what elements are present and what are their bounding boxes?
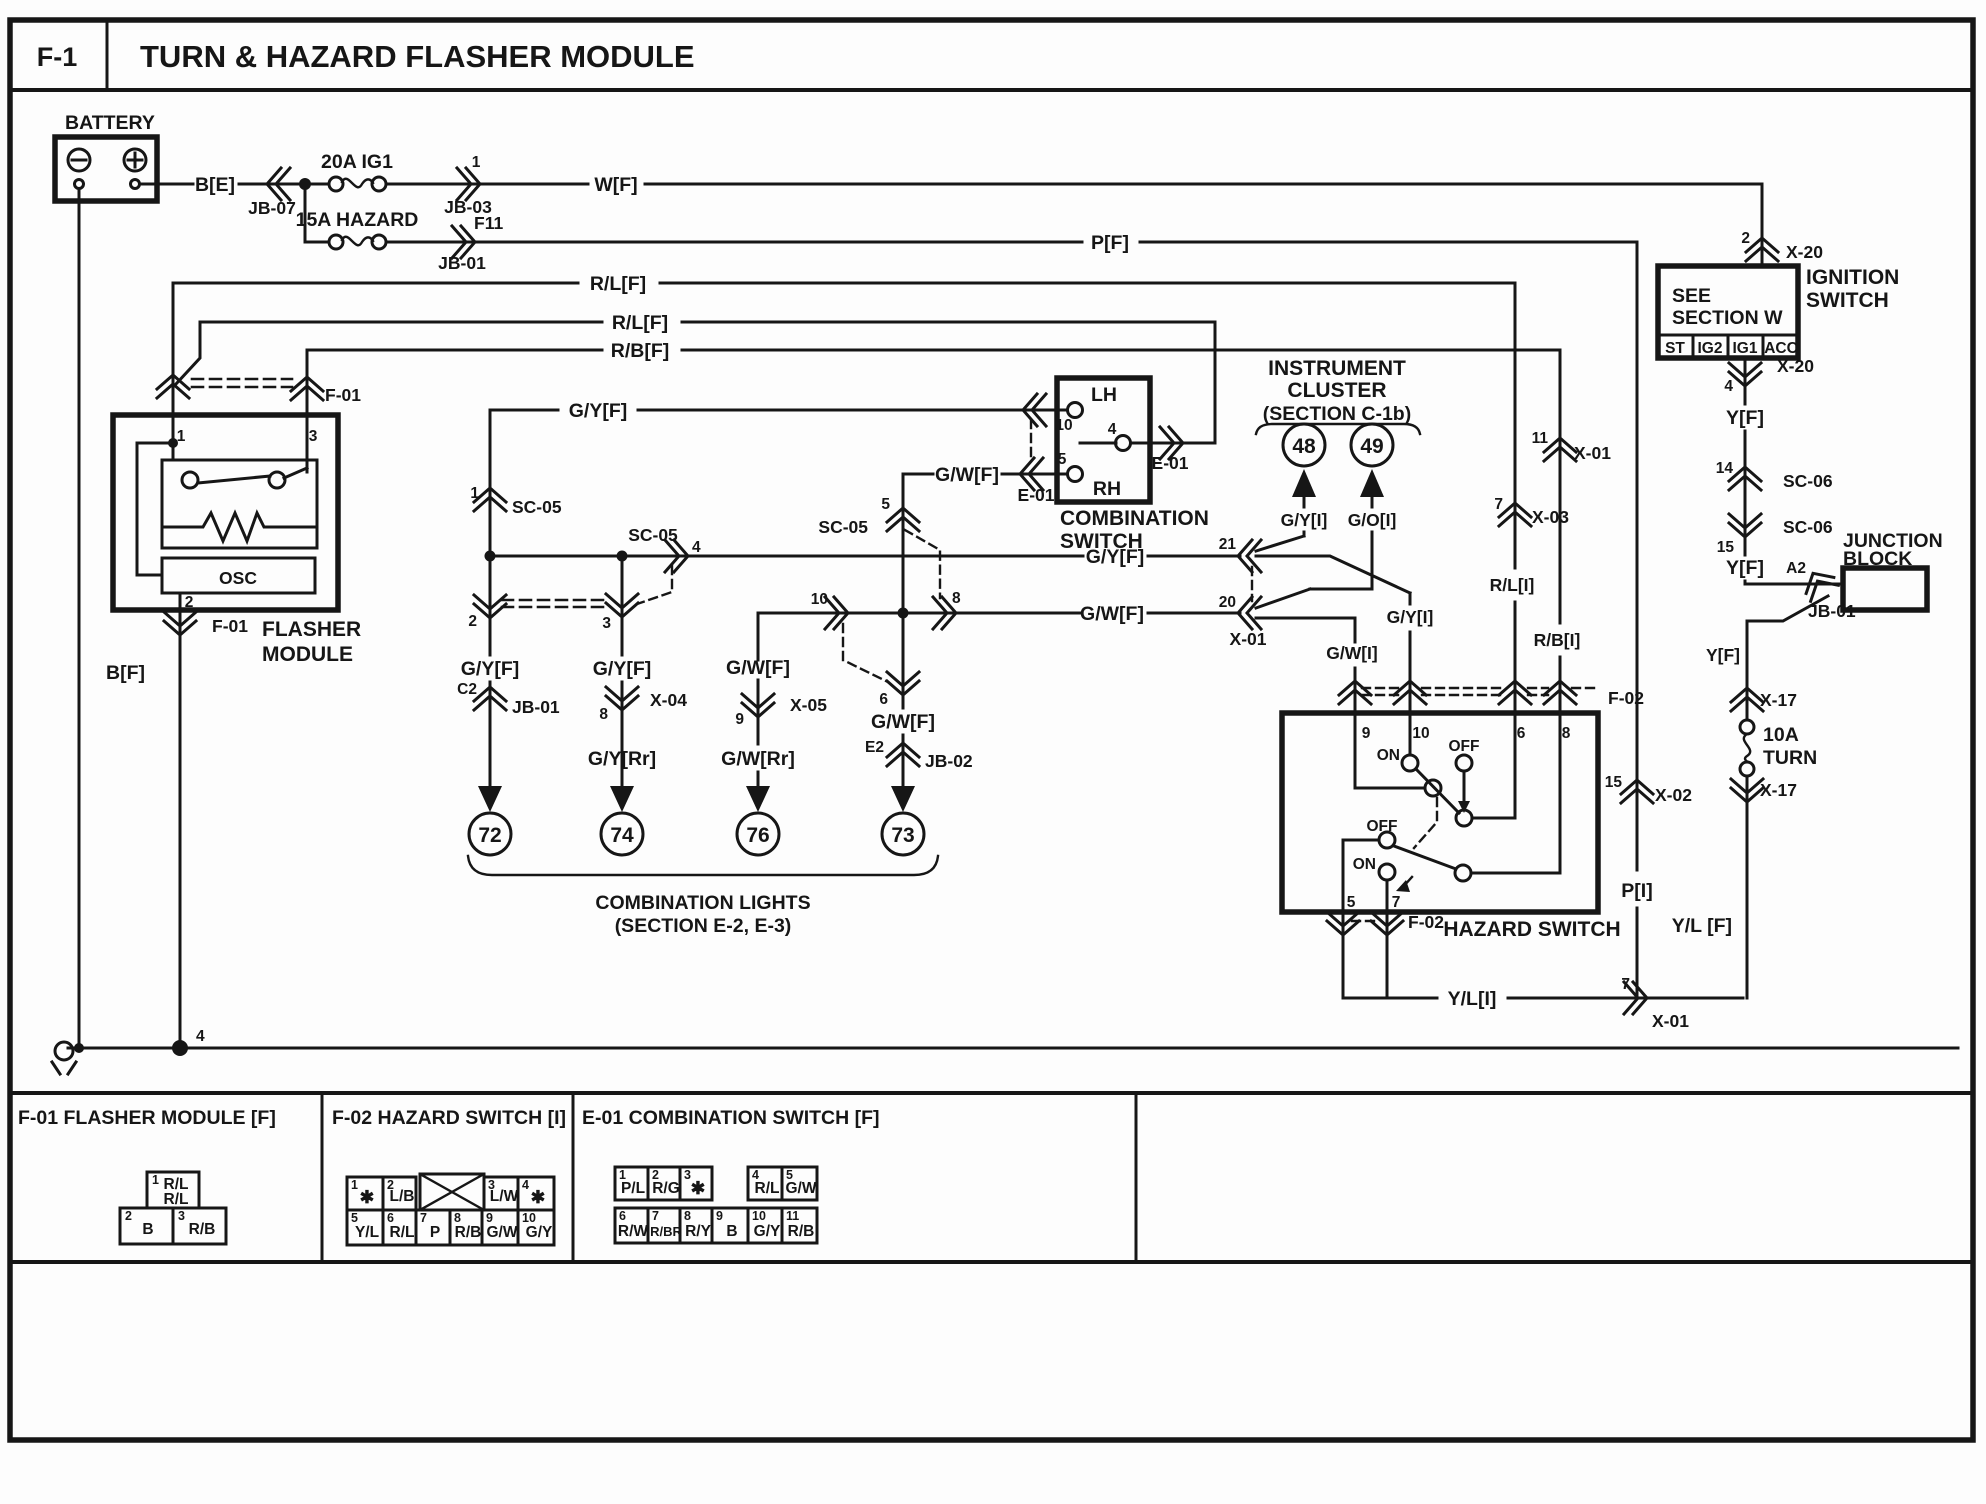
pin-number: 4 xyxy=(692,539,701,556)
table-header: F-02 HAZARD SWITCH [I] xyxy=(332,1107,566,1129)
switch-pos: OFF xyxy=(1449,738,1480,755)
wiring-diagram-page: F-1 TURN & HAZARD FLASHER MODULE BATTERY… xyxy=(0,0,1986,1504)
table-header: F-01 FLASHER MODULE [F] xyxy=(18,1107,276,1129)
pin-number: 1 xyxy=(152,1173,159,1187)
wire-label: G/Y[F] xyxy=(461,658,520,680)
pin-wire: R/L xyxy=(164,1191,189,1208)
arrow-up-icon xyxy=(1292,469,1316,497)
arrow-down-icon xyxy=(746,786,770,812)
connector-label: X-01 xyxy=(1574,443,1611,463)
pin-number: C2 xyxy=(457,681,477,698)
battery: BATTERY xyxy=(55,112,157,1048)
connector-label: X-20 xyxy=(1786,242,1823,262)
section-label: SECTION W xyxy=(1672,307,1783,329)
pin-number: 10 xyxy=(752,1209,766,1223)
wire-label: G/Y[I] xyxy=(1387,607,1434,627)
wire-label: G/Y[Rr] xyxy=(588,748,656,770)
component-label: MODULE xyxy=(262,643,353,666)
wire-label: Y/L [F] xyxy=(1672,915,1732,937)
arrow-down-icon xyxy=(891,786,915,812)
section-label: (SECTION E-2, E-3) xyxy=(615,915,792,937)
pin-wire: R/L xyxy=(390,1224,415,1241)
wire-label: G/W[Rr] xyxy=(721,748,795,770)
pin-number: 9 xyxy=(1362,725,1371,742)
connector-label: F-02 xyxy=(1408,912,1444,932)
switch-pos: OFF xyxy=(1367,818,1398,835)
connector-label: F-01 xyxy=(325,385,361,405)
pin-number: 1 xyxy=(177,428,186,445)
pin-number: 7 xyxy=(652,1209,659,1223)
arrow-down-icon xyxy=(478,786,502,812)
pin-number: 8 xyxy=(952,590,961,607)
pin-number: 11 xyxy=(1532,430,1549,447)
hazard-switch: ON OFF OFF ON 9 10 6 8 5 7 F-02 F-02 HAZ… xyxy=(1282,688,1743,1031)
pin-number: 7 xyxy=(1494,496,1503,513)
connector-table-f01: F-01 FLASHER MODULE [F] 1 R/L R/L 2 B 3 … xyxy=(18,1107,276,1244)
wire-label: W[F] xyxy=(594,174,637,196)
connector-label: SC-06 xyxy=(1783,517,1833,537)
pin-number: 4 xyxy=(1724,378,1733,395)
connector-label: X-02 xyxy=(1655,785,1692,805)
pin-number: 11 xyxy=(786,1209,799,1223)
switch-pos: ON xyxy=(1377,747,1400,764)
pin-number: 7 xyxy=(1392,894,1401,911)
ignition-switch: SEE SECTION W ST IG2 IG1 ACC IGNITION SW… xyxy=(1658,230,1899,358)
battery-label: BATTERY xyxy=(65,112,155,134)
combination-switch: LH RH 10 4 5 E-01 E-01 COMBINATION SWITC… xyxy=(1018,378,1209,553)
pin-number: 8 xyxy=(599,706,608,723)
pin-number: 7 xyxy=(420,1211,427,1225)
ign-pos: IG1 xyxy=(1733,340,1758,357)
connector-label: X-04 xyxy=(650,690,687,710)
wire-label: G/Y[F] xyxy=(593,658,652,680)
switch-pos: ON xyxy=(1353,856,1376,873)
pin-number: 21 xyxy=(1219,536,1237,553)
see-label: SEE xyxy=(1672,285,1711,307)
pin-wire: R/W xyxy=(618,1223,649,1240)
pin-wire: G/W xyxy=(786,1180,817,1197)
lh-label: LH xyxy=(1091,384,1117,406)
connector-label: JB-01 xyxy=(512,697,560,717)
pin-wire: R/G xyxy=(652,1180,680,1197)
pin-wire: R/L xyxy=(755,1180,780,1197)
pin-wire: Y/L xyxy=(355,1224,379,1241)
pin-number: 4 xyxy=(1108,421,1117,438)
wire-label: R/L[I] xyxy=(1490,575,1535,595)
osc-label: OSC xyxy=(219,568,257,588)
pin-number: 9 xyxy=(735,711,744,728)
connector-label: F-01 xyxy=(212,616,248,636)
page-title: TURN & HAZARD FLASHER MODULE xyxy=(140,39,695,74)
pin-number: E2 xyxy=(865,739,884,756)
pin-number: 4 xyxy=(522,1178,529,1192)
component-label: SWITCH xyxy=(1806,289,1889,312)
rh-label: RH xyxy=(1093,478,1121,500)
component-label: SWITCH xyxy=(1060,530,1143,553)
pin-wire: R/B xyxy=(455,1224,482,1241)
connector-chevrons xyxy=(157,168,1838,1014)
connector-label: X-17 xyxy=(1760,690,1797,710)
turn-signal-trunk-wires: R/L[F] R/L[F] R/B[F] R/L[I] R/B[I] 7 X-0… xyxy=(173,273,1611,713)
wire-label: B[E] xyxy=(195,174,235,196)
wire-label: R/L[F] xyxy=(590,273,646,295)
pin-number: 2 xyxy=(185,594,194,611)
connector-label: X-01 xyxy=(1652,1011,1689,1031)
pin-number: 8 xyxy=(454,1211,461,1225)
section-label: (SECTION C-1b) xyxy=(1263,403,1411,425)
pin-wire: G/Y xyxy=(754,1223,781,1240)
title-block: F-1 TURN & HAZARD FLASHER MODULE xyxy=(37,39,695,74)
ign-pos: ACC xyxy=(1764,340,1798,357)
connector-label: JB-02 xyxy=(925,751,973,771)
light-ref: 74 xyxy=(610,824,634,847)
connector-label: SC-05 xyxy=(818,517,868,537)
table-header: E-01 COMBINATION SWITCH [F] xyxy=(582,1107,880,1129)
fuse-label: 10A xyxy=(1763,724,1799,746)
pin-wire: L/B xyxy=(390,1188,415,1205)
component-label: IGNITION xyxy=(1806,266,1899,289)
indicator-ref: 48 xyxy=(1292,435,1316,458)
pin-number: 10 xyxy=(1055,417,1072,434)
wire-label: Y[F] xyxy=(1726,407,1764,429)
wire-label: Y[F] xyxy=(1706,645,1740,665)
pin-number: 6 xyxy=(1517,725,1526,742)
pin-number: 3 xyxy=(602,615,611,632)
pin-number: 4 xyxy=(196,1028,205,1045)
pin-number: 5 xyxy=(881,496,890,513)
pin-number: 10 xyxy=(1412,725,1429,742)
connector-label: F-02 xyxy=(1608,688,1644,708)
pin-number: 6 xyxy=(879,691,888,708)
connector-label: X-17 xyxy=(1760,780,1797,800)
pin-wire: R/B xyxy=(788,1223,815,1240)
flasher-module: OSC F-01 1 3 2 F-01 FLASHER MODULE B[F] xyxy=(106,379,361,1048)
wire-label: G/W[F] xyxy=(1080,603,1144,625)
pin-wire: P/L xyxy=(621,1180,645,1197)
pin-wire: B xyxy=(726,1223,737,1240)
pin-wire: R/Y xyxy=(685,1223,712,1240)
pin-number: 10 xyxy=(522,1211,536,1225)
pin-number: 8 xyxy=(1562,725,1571,742)
connector-label: X-20 xyxy=(1777,356,1814,376)
wire-label: G/W[F] xyxy=(871,711,935,733)
pin-number: 9 xyxy=(716,1209,723,1223)
connector-label: SC-05 xyxy=(628,525,678,545)
pin-number: 6 xyxy=(387,1211,394,1225)
wire-label: Y/L[I] xyxy=(1448,988,1497,1010)
pin-number: 1 xyxy=(351,1178,358,1192)
component-label: CLUSTER xyxy=(1287,379,1386,402)
light-ref: 72 xyxy=(478,824,501,847)
wire-label: R/B[F] xyxy=(611,340,669,362)
light-ref: 73 xyxy=(891,824,914,847)
pin-number: 9 xyxy=(486,1211,493,1225)
wire-label: R/B[I] xyxy=(1534,630,1581,650)
pin-number: 6 xyxy=(619,1209,626,1223)
wire-label: G/W[F] xyxy=(935,464,999,486)
pin-number: 5 xyxy=(1347,894,1356,911)
wire-label: G/O[I] xyxy=(1348,510,1397,530)
combination-lights: G/Y[F] C2 JB-01 G/Y[F] 8 X-04 G/Y[Rr] G/… xyxy=(457,657,973,937)
connector-label: SC-05 xyxy=(512,497,562,517)
diagram-code: F-1 xyxy=(37,42,78,72)
wire-label: G/Y[F] xyxy=(569,400,628,422)
diagram-canvas: F-1 TURN & HAZARD FLASHER MODULE BATTERY… xyxy=(0,0,1986,1504)
wire-label: Y[F] xyxy=(1726,557,1764,579)
pin-number: 1 xyxy=(472,154,481,171)
pin-wire: ✱ xyxy=(360,1187,375,1207)
wire-label: P[I] xyxy=(1621,880,1652,902)
wire-label: G/W[F] xyxy=(726,657,790,679)
pin-number: 2 xyxy=(1741,230,1750,247)
connector-label: JB-01 xyxy=(1808,601,1856,621)
pin-number: 20 xyxy=(1219,594,1236,611)
pin-number: 3 xyxy=(178,1209,185,1223)
light-ref: 76 xyxy=(746,824,769,847)
pin-number: F11 xyxy=(474,213,503,233)
connector-label: X-05 xyxy=(790,695,827,715)
pin-wire: B xyxy=(142,1221,153,1238)
pin-number: 14 xyxy=(1716,460,1734,477)
pin-number: 2 xyxy=(125,1209,132,1223)
wire-label: B[F] xyxy=(106,662,145,684)
pin-number: A2 xyxy=(1786,560,1806,577)
pin-number: 5 xyxy=(351,1211,358,1225)
component-label: COMBINATION xyxy=(1060,507,1209,530)
connector-table-e01: E-01 COMBINATION SWITCH [F] 1 P/L 2 R/G … xyxy=(582,1107,880,1243)
pin-wire: ✱ xyxy=(691,1178,706,1198)
pin-number: 15 xyxy=(1717,539,1735,556)
pin-number: 2 xyxy=(468,613,477,630)
pin-wire: ✱ xyxy=(531,1187,546,1207)
pin-wire: R/BR xyxy=(650,1224,682,1239)
ign-pos: IG2 xyxy=(1698,340,1723,357)
pin-number: 8 xyxy=(684,1209,691,1223)
ign-pos: ST xyxy=(1665,340,1685,357)
wire-label: G/Y[I] xyxy=(1281,510,1328,530)
pin-number: 5 xyxy=(1058,451,1067,468)
ground-bus: 4 xyxy=(68,1028,1958,1056)
connector-label: E-01 xyxy=(1018,485,1055,505)
arrow-up-icon xyxy=(1360,469,1384,497)
fuse-label: 15A HAZARD xyxy=(296,209,419,231)
ignition-feed-wires: 4 X-20 Y[F] 14 SC-06 SC-06 15 Y[F] A2 JB… xyxy=(1672,356,1943,998)
pin-wire: G/Y xyxy=(526,1224,553,1241)
fuse-label: 20A IG1 xyxy=(321,151,393,173)
arrow-down-icon xyxy=(610,786,634,812)
pin-wire: R/B xyxy=(189,1221,216,1238)
pin-number: 3 xyxy=(309,428,318,445)
component-label: FLASHER xyxy=(262,618,361,641)
wire-label: P[F] xyxy=(1091,232,1129,254)
section-label: COMBINATION LIGHTS xyxy=(595,892,810,914)
pin-number: 15 xyxy=(1605,774,1623,791)
connector-label: X-01 xyxy=(1230,629,1267,649)
pin-wire: P xyxy=(430,1224,440,1241)
component-label: INSTRUMENT xyxy=(1268,357,1406,380)
pin-wire: L/W xyxy=(490,1188,519,1205)
component-label: BLOCK xyxy=(1843,548,1912,570)
indicator-ref: 49 xyxy=(1360,435,1383,458)
pin-wire: G/W xyxy=(487,1224,518,1241)
connector-label: X-03 xyxy=(1532,507,1569,527)
connector-label: SC-06 xyxy=(1783,471,1833,491)
component-label: HAZARD SWITCH xyxy=(1443,918,1620,941)
connector-table-f02: F-02 HAZARD SWITCH [I] 1 ✱ 2 L/B 3 L/W 4… xyxy=(332,1107,566,1245)
signal-distribution-wires: G/Y[F] G/Y[F] G/W[F] G/W[F] 1 SC-05 SC-0… xyxy=(468,400,1410,786)
wire-label: R/L[F] xyxy=(612,312,668,334)
wire-label: G/W[I] xyxy=(1326,643,1378,663)
connector-label: JB-07 xyxy=(248,198,296,218)
fuse-label: TURN xyxy=(1763,747,1817,769)
